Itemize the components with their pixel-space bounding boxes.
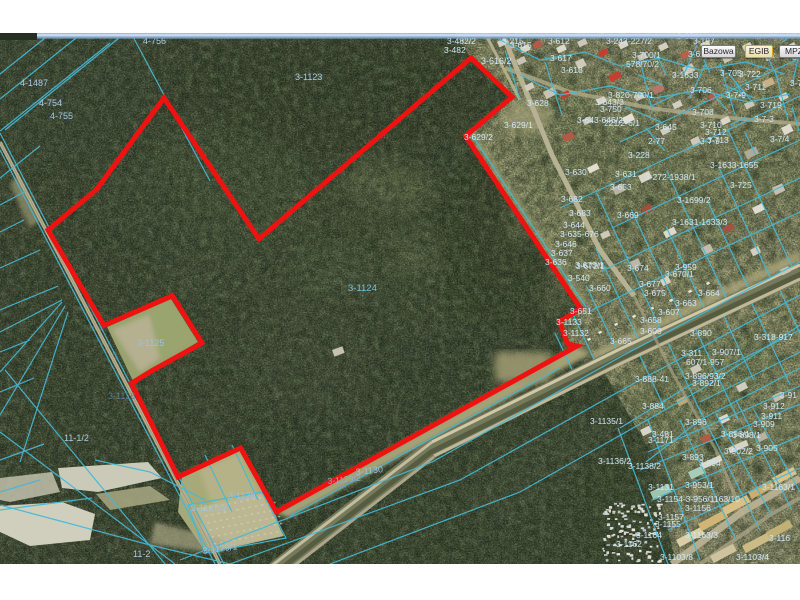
svg-text:3-272-1938/1: 3-272-1938/1	[645, 172, 696, 182]
svg-text:3-682: 3-682	[561, 194, 583, 204]
svg-text:3-318-917: 3-318-917	[754, 332, 793, 342]
svg-text:3-1126: 3-1126	[108, 391, 135, 401]
svg-text:4-1487: 4-1487	[20, 78, 48, 88]
svg-text:3-888-41: 3-888-41	[635, 374, 669, 384]
svg-text:578/70/2: 578/70/2	[626, 59, 659, 69]
svg-text:3-902/2: 3-902/2	[724, 446, 753, 456]
svg-text:3-664: 3-664	[698, 288, 720, 298]
svg-text:3-660: 3-660	[589, 283, 611, 293]
svg-text:3-892/1: 3-892/1	[692, 378, 721, 388]
svg-text:3-670/1: 3-670/1	[665, 269, 694, 279]
svg-text:3-658: 3-658	[640, 315, 662, 325]
svg-text:3-706: 3-706	[690, 85, 712, 95]
svg-text:3-643-646/2: 3-643-646/2	[577, 115, 623, 125]
svg-text:3-636: 3-636	[545, 257, 567, 267]
svg-text:3-629/2: 3-629/2	[464, 132, 493, 142]
svg-text:3-618: 3-618	[561, 65, 583, 75]
svg-text:3-1155: 3-1155	[655, 519, 681, 529]
svg-text:3-1103/4: 3-1103/4	[736, 552, 769, 562]
svg-text:3-7/4: 3-7/4	[770, 134, 790, 144]
svg-text:3-912: 3-912	[763, 401, 785, 411]
svg-text:3-1128: 3-1128	[228, 491, 255, 501]
svg-text:3-609: 3-609	[640, 326, 662, 336]
svg-text:3-1163/3: 3-1163/3	[685, 530, 718, 540]
svg-text:3-77: 3-77	[790, 78, 800, 88]
svg-text:3-7•9: 3-7•9	[726, 90, 746, 100]
svg-text:3-1127/3: 3-1127/3	[191, 503, 226, 513]
svg-text:3-635-676: 3-635-676	[560, 229, 599, 239]
svg-text:3-905: 3-905	[756, 443, 778, 453]
svg-text:3-953/1: 3-953/1	[685, 480, 714, 490]
svg-text:3-645: 3-645	[655, 122, 677, 132]
svg-text:4-755: 4-755	[50, 111, 73, 121]
svg-text:3-630: 3-630	[565, 167, 587, 177]
svg-text:3-629/1: 3-629/1	[504, 120, 533, 130]
svg-text:3-631: 3-631	[615, 169, 637, 179]
svg-text:3-896/1: 3-896/1	[721, 429, 750, 439]
svg-text:3-894: 3-894	[699, 458, 721, 468]
svg-text:3-1699/2: 3-1699/2	[677, 195, 711, 205]
svg-text:3-1163/1: 3-1163/1	[762, 482, 795, 492]
svg-text:3-1131: 3-1131	[648, 482, 674, 492]
svg-text:3-628: 3-628	[527, 98, 549, 108]
svg-text:3-713: 3-713	[707, 135, 729, 145]
svg-text:3-669: 3-669	[617, 210, 639, 220]
svg-text:3-909: 3-909	[753, 419, 775, 429]
svg-text:3-617: 3-617	[550, 53, 572, 63]
svg-text:3-1156: 3-1156	[685, 503, 711, 513]
svg-text:4-754: 4-754	[39, 98, 62, 108]
svg-text:3-890: 3-890	[690, 328, 712, 338]
svg-text:3-1633: 3-1633	[672, 70, 699, 80]
svg-text:3-1132: 3-1132	[563, 328, 589, 338]
svg-text:3-719: 3-719	[760, 100, 782, 110]
svg-text:3-1133: 3-1133	[556, 317, 582, 327]
svg-text:3-482: 3-482	[444, 45, 466, 55]
svg-text:3-725: 3-725	[730, 180, 752, 190]
svg-text:3-1124: 3-1124	[348, 283, 377, 294]
svg-text:3-228: 3-228	[628, 150, 650, 160]
svg-text:3-673/1: 3-673/1	[575, 260, 604, 270]
svg-text:3-116: 3-116	[769, 533, 790, 543]
svg-text:3-674: 3-674	[627, 263, 649, 273]
svg-text:3-1171: 3-1171	[648, 435, 674, 445]
svg-text:3-665: 3-665	[610, 336, 632, 346]
svg-text:3-1633-1655: 3-1633-1655	[710, 160, 758, 170]
svg-text:11-2: 11-2	[133, 549, 150, 559]
svg-text:3-615: 3-615	[510, 40, 532, 50]
svg-text:3-91: 3-91	[780, 390, 797, 400]
svg-text:3-708: 3-708	[692, 107, 714, 117]
svg-text:3-540: 3-540	[568, 273, 590, 283]
svg-text:3-653: 3-653	[610, 182, 632, 192]
svg-text:3-651: 3-651	[570, 306, 592, 316]
svg-text:3-722: 3-722	[739, 69, 761, 79]
svg-text:3-1136/2: 3-1136/2	[598, 456, 631, 466]
svg-text:3-711: 3-711	[745, 82, 766, 92]
svg-text:3-675: 3-675	[644, 288, 666, 298]
svg-text:3-7-3: 3-7-3	[754, 114, 774, 124]
svg-text:3-1138/2: 3-1138/2	[628, 461, 661, 471]
svg-text:3-1125: 3-1125	[137, 338, 164, 348]
svg-text:3-1123: 3-1123	[295, 72, 322, 82]
svg-text:3-616/2: 3-616/2	[481, 56, 512, 66]
svg-text:607/1-957: 607/1-957	[686, 357, 725, 367]
svg-text:3-1103/8: 3-1103/8	[660, 552, 693, 562]
svg-text:3-1162: 3-1162	[616, 539, 642, 549]
svg-text:2-77: 2-77	[648, 136, 665, 146]
svg-text:3-643/3: 3-643/3	[595, 97, 624, 107]
svg-text:3-1135/1: 3-1135/1	[590, 416, 623, 426]
svg-text:11-1/2: 11-1/2	[64, 433, 89, 443]
svg-text:3-683: 3-683	[569, 208, 591, 218]
svg-text:3-884: 3-884	[642, 401, 664, 411]
svg-text:3-907/1: 3-907/1	[712, 347, 741, 357]
svg-text:3-1631-1633/3: 3-1631-1633/3	[672, 217, 728, 227]
svg-text:3-896: 3-896	[685, 417, 707, 427]
